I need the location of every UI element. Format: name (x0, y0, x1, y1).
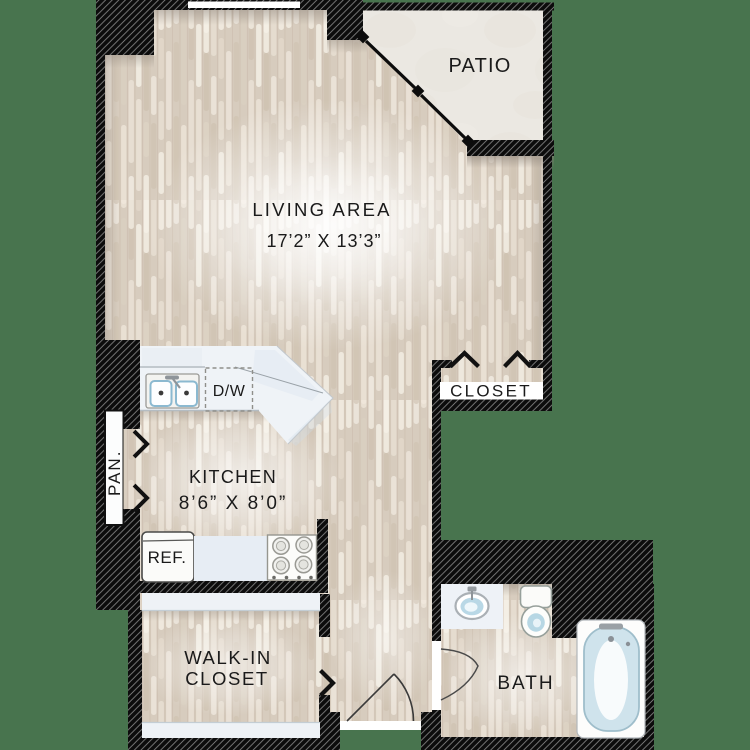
svg-text:17’2” X 13’3”: 17’2” X 13’3” (266, 231, 381, 251)
svg-text:KITCHEN: KITCHEN (189, 467, 277, 487)
svg-text:BATH: BATH (497, 673, 554, 694)
svg-text:PAN.: PAN. (105, 450, 124, 496)
svg-text:D/W: D/W (213, 383, 246, 400)
svg-text:CLOSET: CLOSET (185, 668, 269, 689)
svg-text:REF.: REF. (148, 548, 187, 567)
svg-text:CLOSET: CLOSET (450, 382, 532, 401)
svg-text:PATIO: PATIO (448, 55, 511, 77)
svg-text:LIVING AREA: LIVING AREA (252, 199, 391, 220)
svg-text:WALK-IN: WALK-IN (184, 647, 272, 668)
svg-text:8’6” X 8’0”: 8’6” X 8’0” (179, 493, 288, 514)
